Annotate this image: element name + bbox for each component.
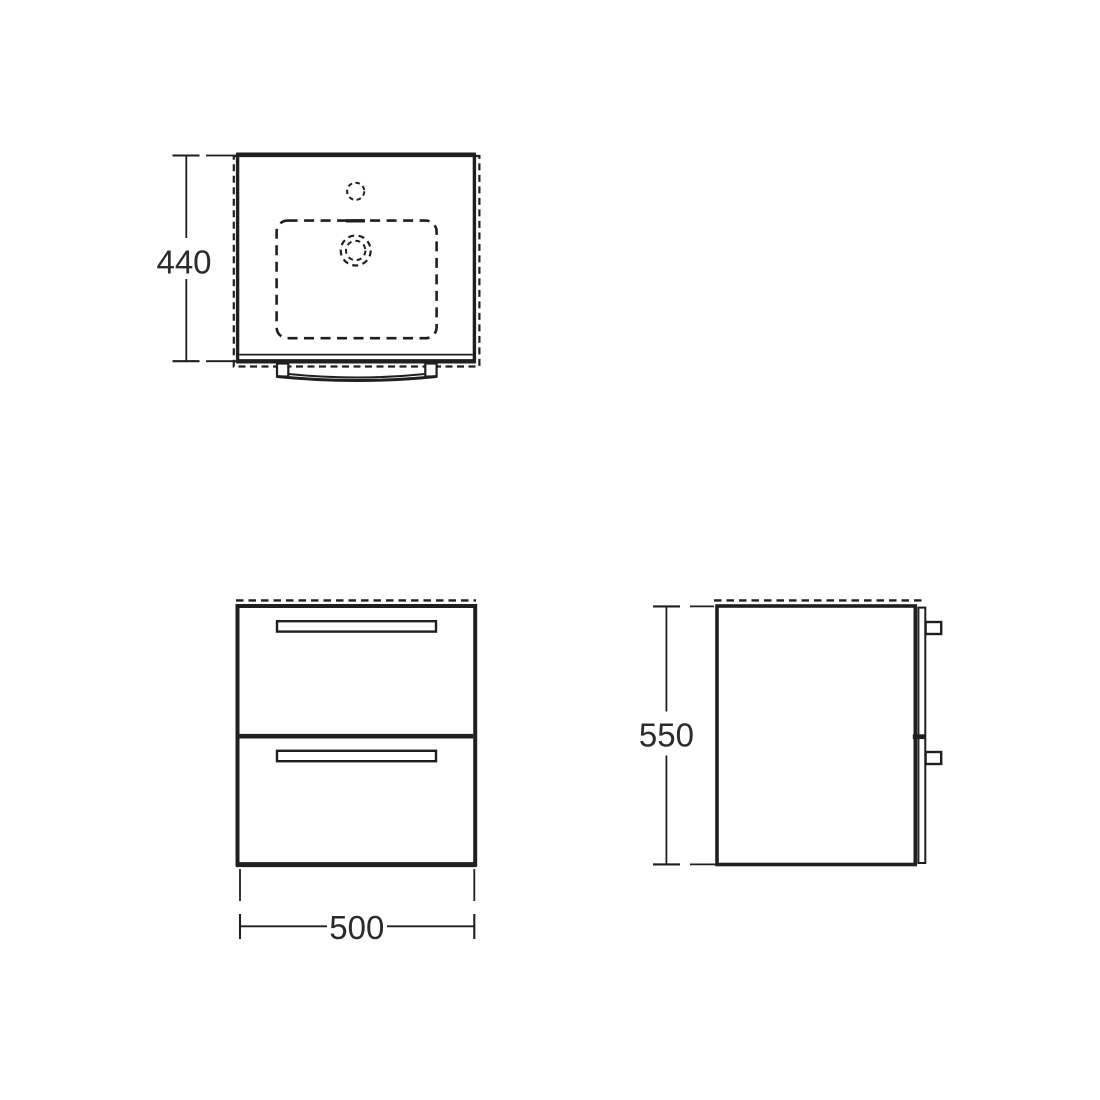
front-width-dimension-label: 500 [329, 909, 384, 946]
side-top-drawer-handle [926, 622, 942, 634]
plan-depth-dimension: 440 [156, 156, 241, 362]
plan-front-lip-right-tab [425, 364, 436, 377]
plan-view: 440 [156, 155, 479, 381]
side-height-dimension: 550 [639, 606, 716, 864]
front-bottom-drawer-handle [277, 751, 436, 761]
front-top-drawer-handle [277, 621, 436, 631]
side-height-dimension-label: 550 [639, 717, 694, 754]
vanity-unit-dimension-drawing: 440 500 [0, 0, 1100, 1100]
side-cabinet-outline [717, 606, 915, 865]
plan-front-lip-inner-curve [289, 374, 426, 378]
side-drawer-divider-band [913, 734, 926, 739]
side-view: 550 [639, 600, 941, 864]
plan-depth-dimension-label: 440 [156, 244, 211, 281]
plan-basin-outline [238, 155, 475, 362]
technical-drawing-canvas: 440 500 [0, 0, 1100, 1100]
side-bottom-drawer-handle [926, 752, 942, 764]
front-view: 500 [236, 600, 477, 946]
plan-front-lip-left-tab [277, 364, 288, 377]
front-width-dimension: 500 [240, 869, 474, 946]
